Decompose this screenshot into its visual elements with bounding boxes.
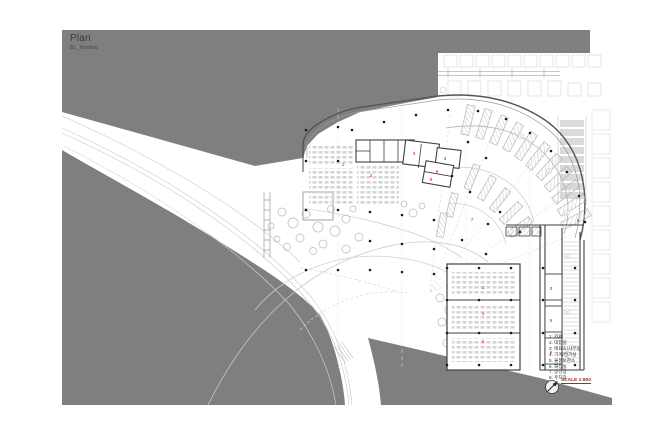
grid-bubble-number: 2 [548, 169, 550, 173]
room-legend: 1. 카페2. 대합실3. 매표소/사무실4. 기계/전기실5. 물품보관소6.… [549, 334, 611, 381]
room-number: 6 [430, 177, 433, 182]
north-arrow-icon [546, 381, 559, 394]
room-number: 3 [413, 151, 416, 156]
sheet-title: Plan [70, 33, 98, 44]
room-number: 2 [370, 173, 373, 178]
room-number: 3 [550, 286, 553, 291]
sheet-subtitle: B1_Terminal [70, 45, 98, 51]
room-number: 1 [342, 162, 345, 167]
grid-bubble-number: 4 [566, 254, 568, 258]
grid-bubble-number: 3 [566, 211, 568, 215]
plan-sheet: 12345678112356 123456 Plan B1_Terminal 1… [0, 0, 650, 433]
ramp [264, 192, 270, 258]
grid-bubble-number: 5 [566, 310, 568, 314]
grid-bubble-number: 1 [520, 134, 522, 138]
room-number: 5 [436, 169, 439, 174]
room-number: 1 [482, 285, 485, 290]
scale-label: SCALE 1:800 [561, 378, 591, 384]
room-number: 5 [550, 318, 553, 323]
room-number: 4 [444, 156, 447, 161]
room-number: 1 [482, 311, 485, 316]
title-block: Plan B1_Terminal [70, 33, 98, 51]
room-number: 8 [577, 218, 580, 223]
room-number: 2 [482, 339, 485, 344]
room-number: 7 [471, 217, 474, 222]
